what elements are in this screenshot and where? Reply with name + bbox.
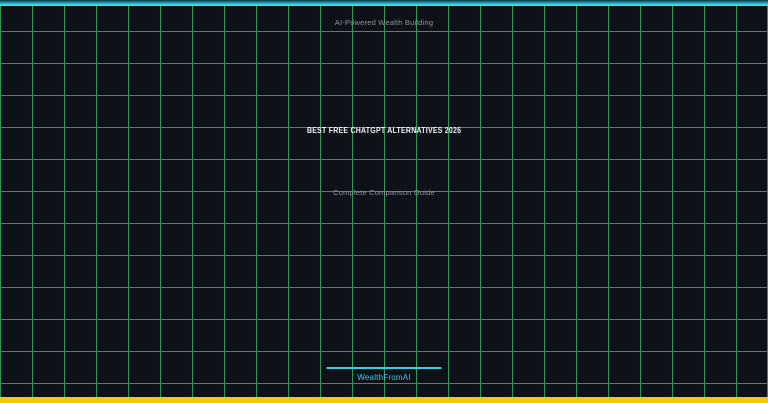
- top-accent-bar: [0, 0, 768, 6]
- hero-canvas: AI-Powered Wealth Building BEST FREE CHA…: [0, 0, 768, 403]
- page-title: BEST FREE CHATGPT ALTERNATIVES 2026: [0, 125, 768, 136]
- brand-name: WealthFromAI: [0, 373, 768, 383]
- hero-tagline: AI-Powered Wealth Building: [0, 18, 768, 28]
- brand-divider-line: [327, 367, 442, 369]
- page-title-text: BEST FREE CHATGPT ALTERNATIVES 2026: [307, 125, 461, 136]
- hero-subtitle: Complete Comparison Guide: [0, 188, 768, 198]
- bottom-accent-bar: [0, 397, 768, 403]
